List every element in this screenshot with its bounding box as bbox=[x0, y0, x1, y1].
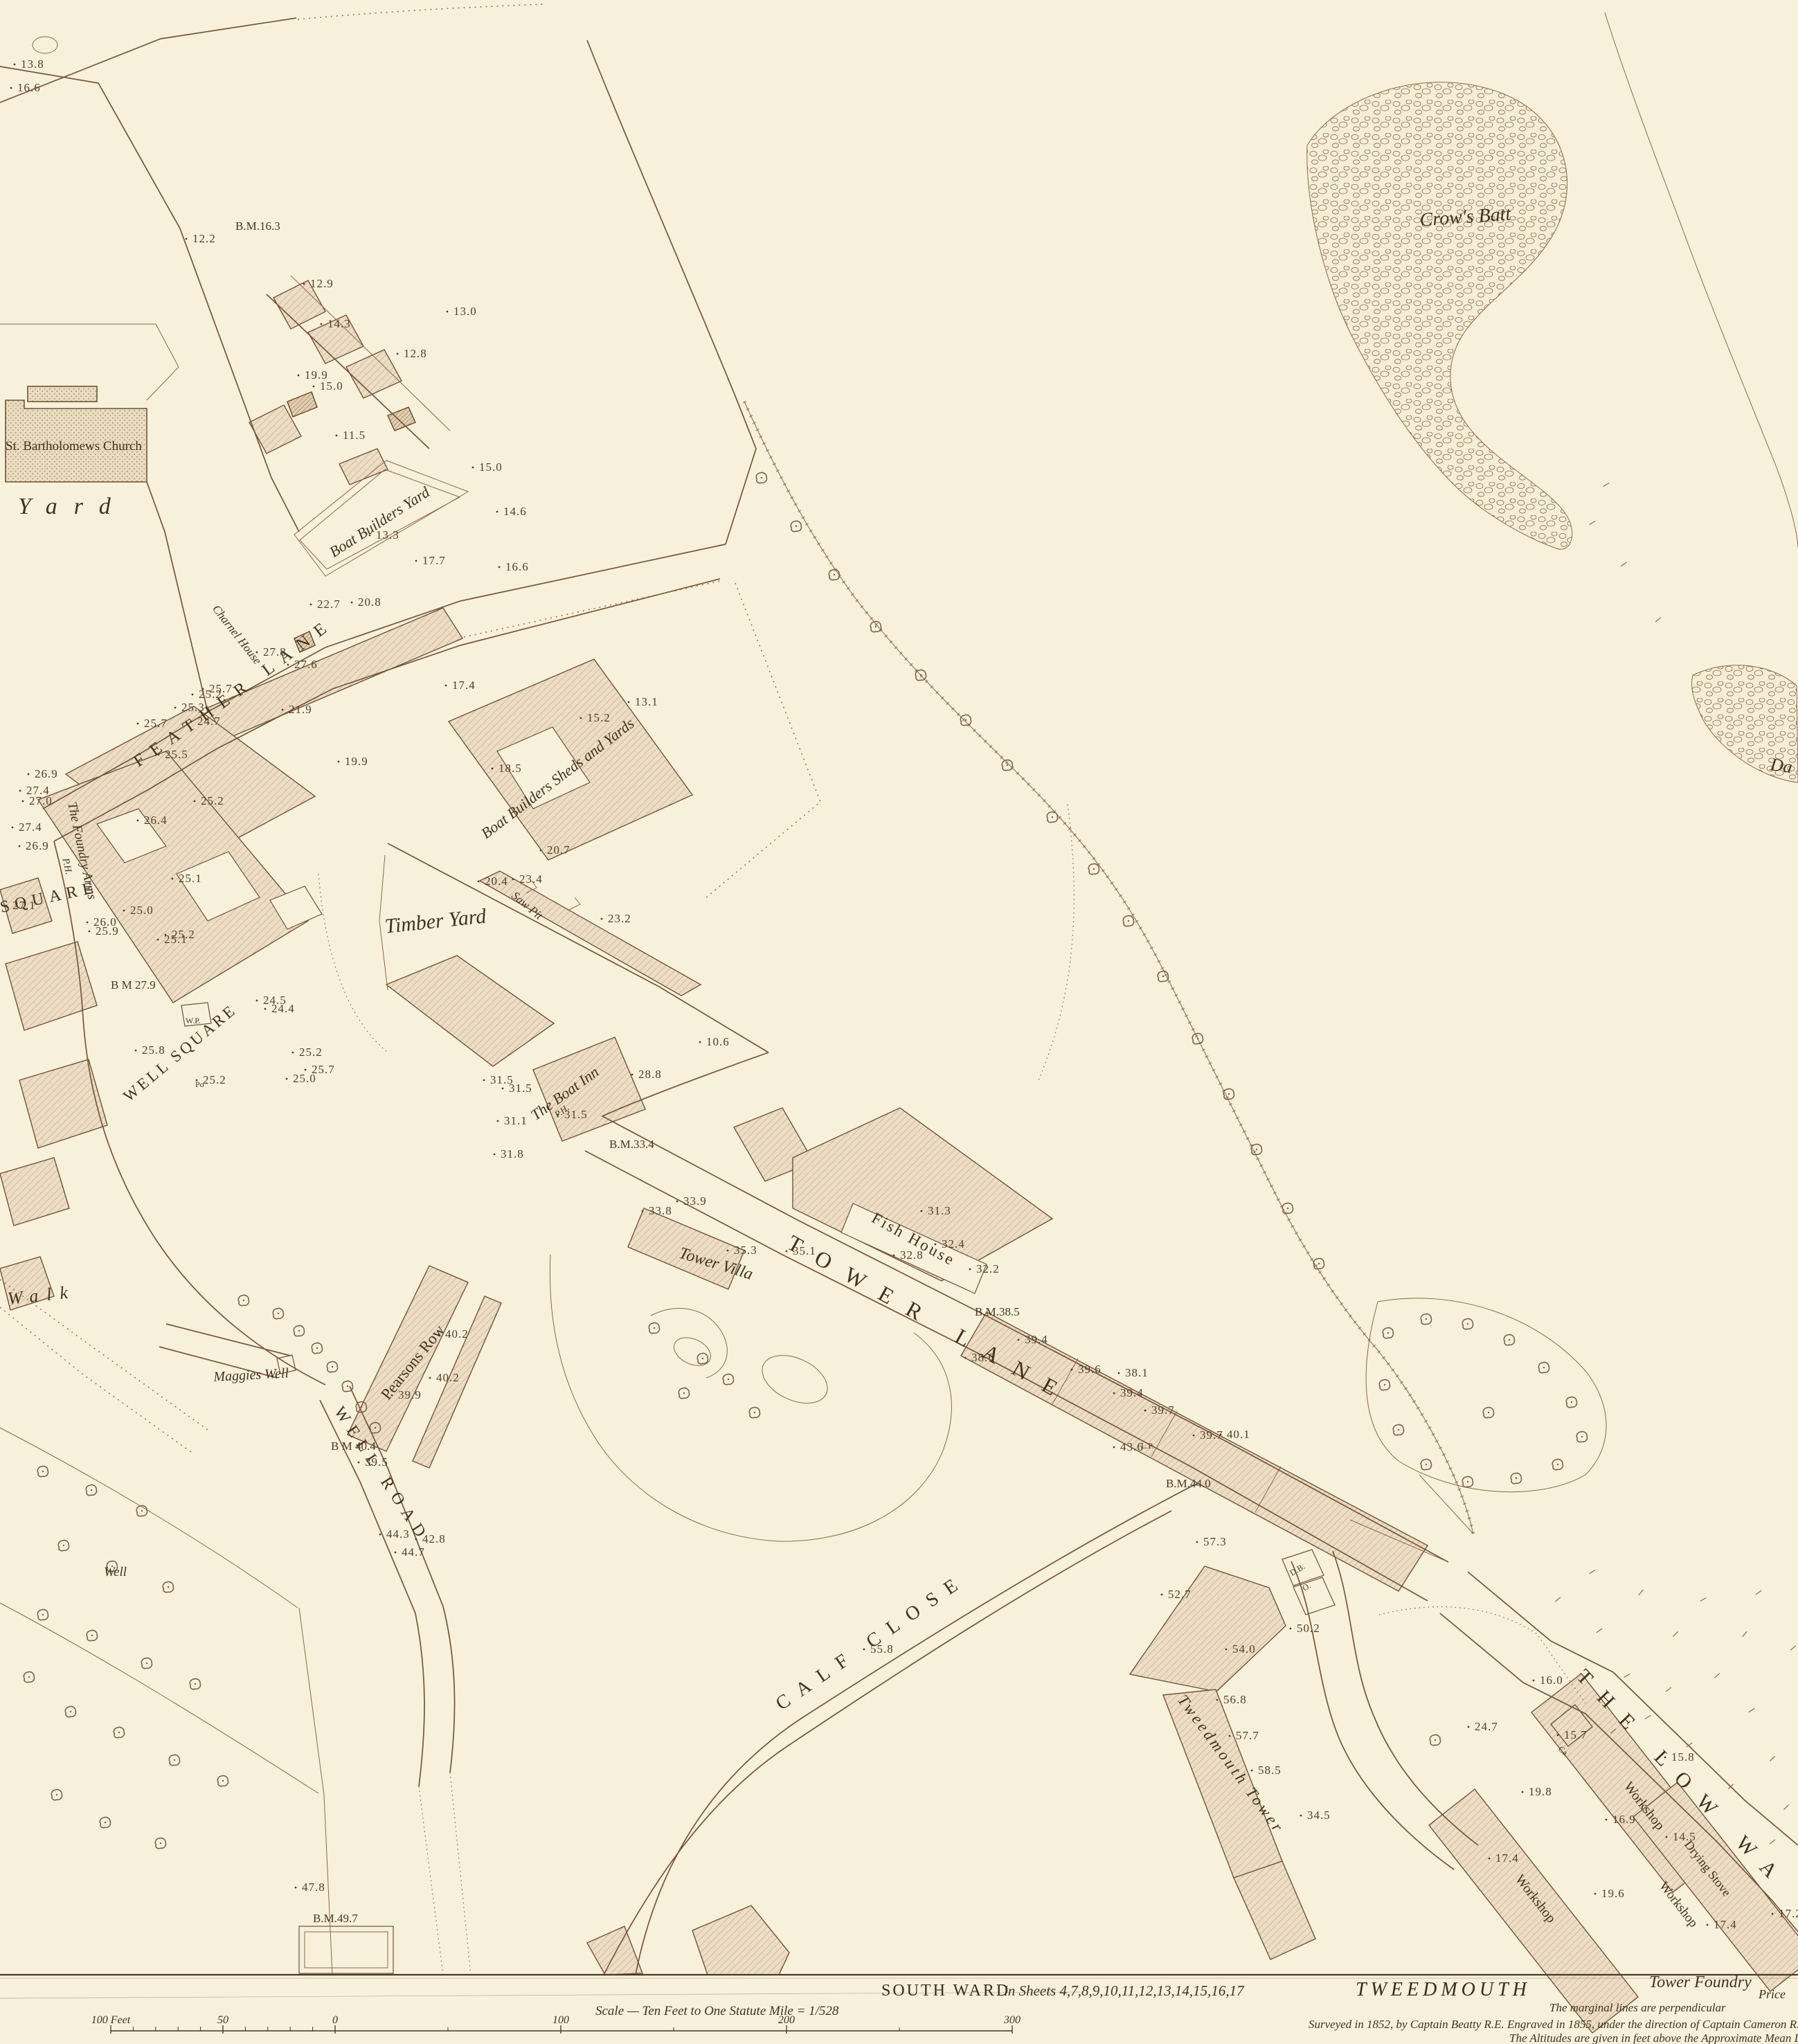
spot-height: 32.2 bbox=[976, 1262, 1000, 1275]
tree-symbol-roadside bbox=[342, 1381, 352, 1391]
shore-debris-tick bbox=[1590, 521, 1596, 525]
spot-height-dot bbox=[256, 1000, 258, 1002]
spot-height: 54.0 bbox=[1232, 1642, 1256, 1656]
spot-height: 27.4 bbox=[19, 821, 42, 834]
spot-height-dot bbox=[1216, 1699, 1219, 1701]
spot-height: 16.0 bbox=[1540, 1674, 1563, 1687]
spot-height-dot bbox=[1666, 1836, 1668, 1838]
spot-height: 19.9 bbox=[305, 368, 328, 382]
spot-height-dot bbox=[192, 694, 194, 696]
margin-layer: SOUTH WARD in Sheets 4,7,8,9,10,11,12,13… bbox=[0, 1973, 1798, 2044]
spot-height-dot bbox=[492, 768, 494, 770]
spot-height-dot bbox=[338, 761, 340, 763]
spot-height: 26.9 bbox=[26, 839, 49, 852]
tweedmouth-tower-building bbox=[1130, 1566, 1286, 1692]
spot-height-dot bbox=[699, 1041, 701, 1043]
spot-height: 56.8 bbox=[1223, 1693, 1247, 1706]
spot-height: 19.6 bbox=[1601, 1887, 1625, 1900]
spot-heights-layer: 15.015.014.613.317.716.612.914.312.819.9… bbox=[6, 57, 1798, 1931]
shore-debris-tick bbox=[1783, 1804, 1788, 1809]
spot-height-dot bbox=[1290, 1628, 1292, 1630]
rocky-foreshore bbox=[1307, 12, 1798, 782]
spot-height-dot bbox=[395, 1552, 397, 1554]
spot-height: 10.6 bbox=[706, 1035, 730, 1048]
tower-foundry-label: Tower Foundry bbox=[1649, 1973, 1752, 1991]
spot-height: 33.8 bbox=[649, 1204, 672, 1217]
square-label: SQUARE bbox=[0, 878, 100, 916]
spot-height-dot bbox=[964, 1357, 967, 1359]
spot-height-dot bbox=[1772, 1913, 1774, 1915]
spot-height-dot bbox=[282, 709, 284, 711]
tree-symbol-orchard bbox=[217, 1775, 228, 1786]
shore-debris-tick bbox=[1624, 1674, 1630, 1678]
spot-height: 24.7 bbox=[1475, 1720, 1498, 1733]
spot-height: 12.9 bbox=[310, 277, 334, 290]
spot-height-dot bbox=[336, 435, 338, 437]
spot-height-dot bbox=[28, 773, 30, 776]
tree-symbol-bank bbox=[756, 472, 766, 483]
shore-debris-tick bbox=[1790, 1646, 1796, 1650]
shore-debris-tick bbox=[1645, 1716, 1651, 1719]
spot-height-dot bbox=[298, 375, 300, 377]
boat-inn-building bbox=[533, 1037, 645, 1141]
tree-symbol-garden bbox=[649, 1323, 659, 1333]
spot-height: 16.6 bbox=[17, 81, 41, 94]
spot-height-dot bbox=[631, 1074, 633, 1076]
south-ward-title: SOUTH WARD bbox=[881, 1982, 1010, 2000]
tree-symbol-cluster bbox=[1552, 1459, 1563, 1469]
tree-symbol-bank bbox=[1088, 863, 1099, 874]
spot-height: 33.9 bbox=[683, 1194, 707, 1208]
spot-height: 12.8 bbox=[404, 347, 427, 360]
labels-layer: St. Bartholomews Church Yard Walk Well C… bbox=[0, 203, 1794, 1930]
spot-height-dot bbox=[497, 1120, 499, 1122]
price-note: Price bbox=[1758, 1987, 1786, 2001]
spot-height-dot bbox=[313, 386, 315, 388]
scale-bar-label: 0 bbox=[332, 2014, 338, 2026]
spot-height: 44.7 bbox=[402, 1545, 425, 1559]
spot-height: 16.6 bbox=[505, 560, 529, 573]
tree-symbol-cluster bbox=[1538, 1362, 1549, 1372]
spot-height: 39.7 bbox=[1151, 1404, 1175, 1417]
scale-bar-label: 100 Feet bbox=[91, 2014, 131, 2026]
spot-height-dot bbox=[478, 881, 480, 883]
spot-height: 25.1 bbox=[164, 933, 188, 946]
shore-debris-tick bbox=[1655, 618, 1661, 622]
spot-height: 23.4 bbox=[519, 872, 543, 886]
tree-symbol-orchard bbox=[190, 1678, 200, 1689]
spot-height-dot bbox=[174, 707, 177, 709]
spot-height-dot bbox=[628, 701, 630, 703]
spot-height: 31.5 bbox=[509, 1082, 532, 1095]
tree-symbol-cluster bbox=[1379, 1379, 1390, 1390]
spot-height-dot bbox=[1251, 1770, 1253, 1772]
benchmark: B.M.44.0 bbox=[1166, 1477, 1211, 1490]
spot-height: 25.2 bbox=[203, 1073, 226, 1086]
spot-height-dot bbox=[445, 685, 447, 687]
spot-height: 31.8 bbox=[501, 1147, 524, 1160]
spot-height-dot bbox=[969, 1268, 971, 1271]
spot-height: 19.8 bbox=[1529, 1785, 1552, 1798]
shore-debris-tick bbox=[1756, 1590, 1761, 1595]
tree-symbol-orchard bbox=[155, 1838, 165, 1848]
spot-height-dot bbox=[135, 1050, 137, 1052]
tree-symbol-garden bbox=[1430, 1734, 1440, 1745]
spot-height: 22.7 bbox=[317, 598, 341, 611]
spot-height: 14.3 bbox=[327, 317, 351, 330]
spot-height-dot bbox=[1196, 1541, 1198, 1543]
spot-height: 13.0 bbox=[453, 305, 477, 318]
spot-height: 14.6 bbox=[503, 505, 527, 518]
spot-height-dot bbox=[1193, 1435, 1195, 1437]
scale-title: Scale — Ten Feet to One Statute Mile = 1… bbox=[595, 2004, 839, 2018]
spot-height: 25.0 bbox=[293, 1072, 316, 1085]
spot-height-dot bbox=[429, 1377, 431, 1379]
spot-height-dot bbox=[1118, 1372, 1120, 1374]
shore-debris-tick bbox=[1700, 1598, 1707, 1602]
tree-symbol-bank bbox=[1002, 760, 1012, 770]
yard-label: Yard bbox=[18, 494, 127, 519]
shore-debris-tick bbox=[1770, 1756, 1774, 1761]
spot-height-dot bbox=[601, 918, 603, 920]
spot-height-dot bbox=[580, 717, 582, 719]
tree-symbol-orchard bbox=[87, 1630, 97, 1640]
shore-debris-tick bbox=[1673, 1631, 1678, 1636]
tree-symbol-cluster bbox=[1511, 1473, 1521, 1483]
calf-close-label: CALF CLOSE bbox=[772, 1569, 971, 1715]
spot-height-dot bbox=[295, 1887, 297, 1889]
spot-height-dot bbox=[502, 1088, 504, 1090]
tree-symbol-cluster bbox=[1421, 1459, 1431, 1469]
scale-bar-label: 100 bbox=[552, 2014, 569, 2026]
spot-height: 11.5 bbox=[343, 429, 366, 442]
spot-height-dot bbox=[1606, 1819, 1608, 1821]
maggies-well-label: Maggies Well bbox=[213, 1365, 289, 1385]
po-mark: Po bbox=[195, 1079, 204, 1089]
spot-height-dot bbox=[498, 566, 501, 568]
spot-height: 39.7 bbox=[1200, 1428, 1223, 1442]
tree-symbol-roadside bbox=[327, 1361, 337, 1372]
tree-symbol-orchard bbox=[65, 1706, 75, 1716]
tree-symbol-bank bbox=[1123, 915, 1133, 926]
tree-symbol-orchard bbox=[163, 1581, 173, 1592]
spot-height-dot bbox=[172, 878, 174, 880]
spot-height-dot bbox=[727, 1250, 729, 1252]
spot-height: 27.6 bbox=[294, 658, 318, 671]
shore-debris-tick bbox=[1603, 483, 1610, 487]
shore-debris-tick bbox=[1621, 562, 1626, 566]
spot-height: 25.2 bbox=[201, 794, 224, 807]
spot-height-dot bbox=[1533, 1680, 1535, 1682]
spot-height: 25.1 bbox=[179, 872, 202, 885]
tree-symbol-orchard bbox=[58, 1540, 69, 1550]
spot-height: 39.4 bbox=[1120, 1386, 1144, 1399]
scale-bar: 100 Feet500100200300 bbox=[91, 2014, 1021, 2034]
shore-debris-tick bbox=[1743, 1631, 1747, 1637]
shore-debris-tick bbox=[1555, 1597, 1561, 1602]
spot-height: 40.2 bbox=[445, 1327, 469, 1341]
spot-height: 17.7 bbox=[422, 554, 446, 567]
spot-height: 24.4 bbox=[271, 1002, 295, 1015]
spot-height: 26.4 bbox=[144, 814, 168, 827]
tree-symbol-bank bbox=[1313, 1258, 1324, 1268]
spot-height: 25.7 bbox=[144, 717, 168, 730]
surveyed-note: Surveyed in 1852, by Captain Beatty R.E.… bbox=[1309, 2018, 1798, 2031]
spot-height-dot bbox=[1220, 1434, 1222, 1436]
spot-height-dot bbox=[447, 311, 449, 313]
shore-debris-tick bbox=[1639, 1590, 1643, 1595]
spot-height: 17.4 bbox=[1714, 1918, 1737, 1931]
spot-height: 19.9 bbox=[345, 755, 368, 768]
tree-symbol-cluster bbox=[1383, 1327, 1393, 1338]
shore-debris-tick bbox=[1666, 1687, 1671, 1692]
spot-height: 35.3 bbox=[734, 1244, 757, 1257]
benchmark: B.M.33.4 bbox=[609, 1138, 654, 1151]
spot-height-dot bbox=[292, 1052, 294, 1054]
spot-height-dot bbox=[89, 931, 91, 933]
roads-layer bbox=[0, 4, 1798, 1975]
spot-height-dot bbox=[1144, 1410, 1147, 1412]
spot-height: 39.9 bbox=[398, 1388, 422, 1401]
crows-batt-rocks bbox=[1307, 82, 1572, 550]
tree-symbol-orchard bbox=[51, 1789, 62, 1800]
timber-yard-label: Timber Yard bbox=[384, 904, 488, 938]
tree-symbol-bank bbox=[1047, 812, 1057, 822]
spot-height: 25.2 bbox=[299, 1046, 323, 1059]
spot-height: 43.6 bbox=[1120, 1440, 1144, 1453]
spot-height: 34.5 bbox=[1307, 1809, 1331, 1822]
spot-height-dot bbox=[642, 1210, 644, 1212]
well-label: Well bbox=[104, 1565, 127, 1579]
spot-height: 57.7 bbox=[1236, 1729, 1259, 1742]
spot-height-dot bbox=[1113, 1392, 1115, 1395]
buildings-layer bbox=[0, 280, 1798, 2033]
spot-height: 17.4 bbox=[452, 679, 476, 692]
tree-symbol-orchard bbox=[114, 1727, 124, 1737]
spot-height: 40.1 bbox=[1227, 1428, 1250, 1441]
shore-debris-tick bbox=[1590, 1570, 1596, 1574]
spot-height-dot bbox=[123, 910, 125, 912]
spot-height: 15.0 bbox=[479, 460, 503, 474]
spot-height-dot bbox=[494, 1154, 496, 1156]
spot-height: 15.2 bbox=[587, 711, 611, 724]
well-square-label: WELL SQUARE bbox=[120, 1001, 240, 1105]
spot-height: 16.9 bbox=[1612, 1813, 1636, 1826]
spot-height: 50.2 bbox=[1297, 1622, 1320, 1635]
spot-height: 25.0 bbox=[130, 904, 154, 917]
spot-height-dot bbox=[186, 238, 188, 240]
spot-height-dot bbox=[1113, 1446, 1115, 1449]
spot-height: 17.2 bbox=[1779, 1907, 1798, 1920]
spot-height: 44.3 bbox=[386, 1527, 410, 1541]
spot-height: 39.6 bbox=[1078, 1363, 1102, 1376]
spot-height-dot bbox=[483, 1079, 485, 1082]
in-sheets-note: in Sheets 4,7,8,9,10,11,12,13,14,15,16,1… bbox=[1004, 1982, 1245, 1999]
spot-height: 38.1 bbox=[1125, 1366, 1149, 1379]
spot-height-dot bbox=[512, 879, 514, 881]
tree-symbol-orchard bbox=[37, 1466, 48, 1476]
spot-height: 26.9 bbox=[35, 767, 58, 780]
tree-symbol-bank bbox=[1282, 1203, 1293, 1213]
spot-height: 21.9 bbox=[289, 703, 312, 716]
tree-symbol-orchard bbox=[141, 1658, 152, 1668]
tree-symbol-cluster bbox=[1566, 1397, 1576, 1407]
spot-height-dot bbox=[19, 790, 21, 792]
spot-height-dot bbox=[10, 87, 12, 89]
tree-symbol-orchard bbox=[100, 1817, 110, 1827]
spot-height-dot bbox=[351, 602, 353, 604]
spot-height: 13.8 bbox=[21, 57, 44, 71]
benchmark: B.M.49.7 bbox=[313, 1912, 358, 1925]
spot-height-dot bbox=[379, 1534, 381, 1536]
church-wing bbox=[28, 386, 97, 402]
spot-height-dot bbox=[137, 723, 139, 725]
map-canvas: 15.015.014.613.317.716.612.914.312.819.9… bbox=[0, 0, 1798, 2044]
tree-symbol-roadside bbox=[312, 1343, 322, 1353]
garden-pond bbox=[755, 1346, 835, 1413]
spot-height: 28.8 bbox=[638, 1068, 662, 1081]
spot-height: 23.2 bbox=[608, 912, 631, 925]
spot-height-dot bbox=[87, 922, 89, 924]
tree-symbol-roadside bbox=[238, 1295, 249, 1305]
spot-height-dot bbox=[264, 1008, 267, 1010]
spot-height-dot bbox=[19, 845, 21, 848]
spot-height-dot bbox=[137, 820, 139, 822]
tree-symbol-cluster bbox=[1576, 1431, 1587, 1442]
spot-height: 25.9 bbox=[96, 924, 119, 938]
spot-height-dot bbox=[921, 1210, 923, 1212]
spot-height-dot bbox=[1018, 1339, 1020, 1341]
tree-symbol-orchard bbox=[169, 1755, 179, 1765]
spot-height: 15.7 bbox=[1564, 1728, 1588, 1741]
tree-symbol-cluster bbox=[1483, 1407, 1493, 1417]
spot-height: 31.1 bbox=[504, 1114, 528, 1127]
spot-height-dot bbox=[1468, 1726, 1470, 1728]
spot-height-dot bbox=[676, 1201, 678, 1203]
da-partial-label: Da bbox=[1768, 754, 1793, 777]
spot-height-dot bbox=[1225, 1649, 1228, 1651]
tree-symbol-cluster bbox=[1504, 1334, 1514, 1345]
tree-symbol-roadside bbox=[273, 1308, 283, 1318]
spot-height-dot bbox=[22, 800, 24, 803]
spot-height: 31.3 bbox=[928, 1204, 951, 1217]
spot-height-dot bbox=[358, 1462, 360, 1464]
spot-height: 47.8 bbox=[302, 1881, 325, 1894]
spot-height-dot bbox=[1300, 1815, 1302, 1817]
tower-lane-row bbox=[961, 1312, 1428, 1591]
altitudes-note: The Altitudes are given in feet above th… bbox=[1509, 2032, 1798, 2044]
tree-symbol-garden bbox=[749, 1407, 759, 1417]
spot-height-dot bbox=[1594, 1893, 1597, 1895]
tree-symbol-bank bbox=[915, 670, 926, 680]
spot-height: 20.8 bbox=[358, 595, 381, 609]
scale-bar-label: 200 bbox=[778, 2014, 795, 2026]
spot-height-dot bbox=[286, 1078, 288, 1080]
spot-height: 27.0 bbox=[29, 794, 53, 807]
spot-height-dot bbox=[14, 64, 16, 66]
marginal-note: The marginal lines are perpendicular bbox=[1549, 2001, 1726, 2014]
spot-height: 20.7 bbox=[547, 843, 570, 857]
charnel-house-label: Charnel House bbox=[210, 602, 264, 667]
spot-height: 57.3 bbox=[1203, 1535, 1227, 1548]
spot-height-dot bbox=[1489, 1858, 1491, 1860]
spot-height-dot bbox=[415, 560, 417, 562]
spot-height-dot bbox=[321, 323, 323, 325]
map-sheet: 15.015.014.613.317.716.612.914.312.819.9… bbox=[0, 0, 1798, 2044]
spot-height-dot bbox=[1071, 1369, 1073, 1371]
spot-height: 17.4 bbox=[1495, 1852, 1519, 1865]
spot-height: 13.1 bbox=[635, 695, 658, 708]
tree-symbol-bank bbox=[960, 715, 971, 725]
spot-height: 40.2 bbox=[436, 1371, 460, 1384]
tree-symbol-cluster bbox=[1462, 1476, 1473, 1487]
tree-symbol-garden bbox=[678, 1388, 689, 1398]
spot-height-dot bbox=[1161, 1594, 1163, 1596]
spot-height-dot bbox=[194, 800, 196, 803]
tree-symbol-bank bbox=[870, 621, 881, 631]
tree-symbol-orchard bbox=[24, 1671, 34, 1682]
spot-height-dot bbox=[472, 467, 474, 469]
spot-height: 39.4 bbox=[1025, 1333, 1048, 1346]
spot-height-dot bbox=[157, 939, 159, 941]
spot-height-dot bbox=[893, 1255, 895, 1257]
saw-pit-building bbox=[480, 871, 701, 996]
spot-height-dot bbox=[540, 850, 542, 852]
shore-debris-tick bbox=[1714, 1674, 1720, 1678]
spot-height: 52.7 bbox=[1168, 1588, 1192, 1601]
church-label: St. Bartholomews Church bbox=[6, 439, 142, 454]
tree-symbol-bank bbox=[829, 569, 839, 580]
spot-height: 58.5 bbox=[1258, 1764, 1282, 1777]
spot-height-dot bbox=[1707, 1924, 1709, 1926]
tree-symbol-orchard bbox=[37, 1609, 48, 1620]
tree-symbol-roadside bbox=[294, 1325, 304, 1336]
spot-height-dot bbox=[303, 283, 305, 285]
tree-symbol-cluster bbox=[1393, 1424, 1403, 1435]
wp-mark: W.P. bbox=[186, 1016, 201, 1025]
shore-debris-tick bbox=[1749, 1708, 1754, 1712]
spot-height-dot bbox=[12, 827, 14, 829]
benchmark: B M 27.9 bbox=[111, 978, 156, 992]
tree-symbol-orchard bbox=[136, 1505, 147, 1516]
spot-height-dot bbox=[305, 1069, 307, 1071]
tweedmouth-title: TWEEDMOUTH bbox=[1356, 1979, 1531, 2000]
spot-height-dot bbox=[1557, 1734, 1559, 1737]
spot-height-dot bbox=[310, 604, 312, 606]
tree-symbol-garden bbox=[697, 1353, 708, 1363]
spot-height-dot bbox=[397, 353, 399, 355]
spot-height: 12.2 bbox=[192, 232, 216, 245]
spot-height: 18.5 bbox=[498, 762, 522, 775]
scale-bar-label: 300 bbox=[1003, 2014, 1021, 2026]
tree-symbol-cluster bbox=[1421, 1314, 1431, 1324]
scale-bar-label: 50 bbox=[217, 2014, 228, 2026]
shore-debris-tick bbox=[1597, 1629, 1602, 1633]
tree-symbol-garden bbox=[723, 1374, 733, 1384]
spot-height: 20.4 bbox=[485, 875, 508, 888]
spot-height-dot bbox=[1522, 1791, 1524, 1793]
spot-height-dot bbox=[1229, 1735, 1231, 1737]
benchmark: B.M.16.3 bbox=[235, 219, 280, 233]
tree-symbol-cluster bbox=[1462, 1318, 1473, 1329]
lp-mark: L.P. bbox=[1141, 1441, 1154, 1451]
tree-symbol-bank bbox=[791, 521, 801, 531]
shore-debris-tick bbox=[1770, 1840, 1775, 1844]
spot-height: 25.8 bbox=[142, 1043, 165, 1057]
tree-symbol-orchard bbox=[86, 1485, 96, 1495]
spot-height-dot bbox=[496, 511, 498, 513]
benchmark: B.M.38.5 bbox=[975, 1305, 1020, 1318]
